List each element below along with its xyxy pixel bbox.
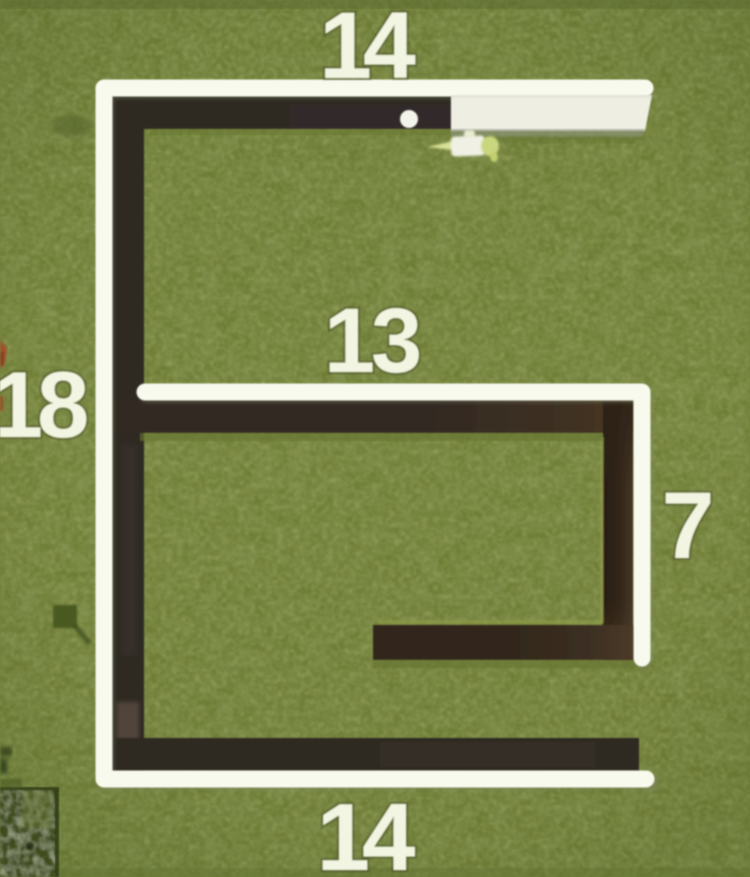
svg-text:14: 14 — [317, 784, 415, 877]
svg-text:14: 14 — [319, 0, 416, 99]
svg-text:13: 13 — [324, 290, 419, 392]
svg-text:18: 18 — [0, 352, 87, 457]
svg-text:7: 7 — [662, 473, 715, 579]
